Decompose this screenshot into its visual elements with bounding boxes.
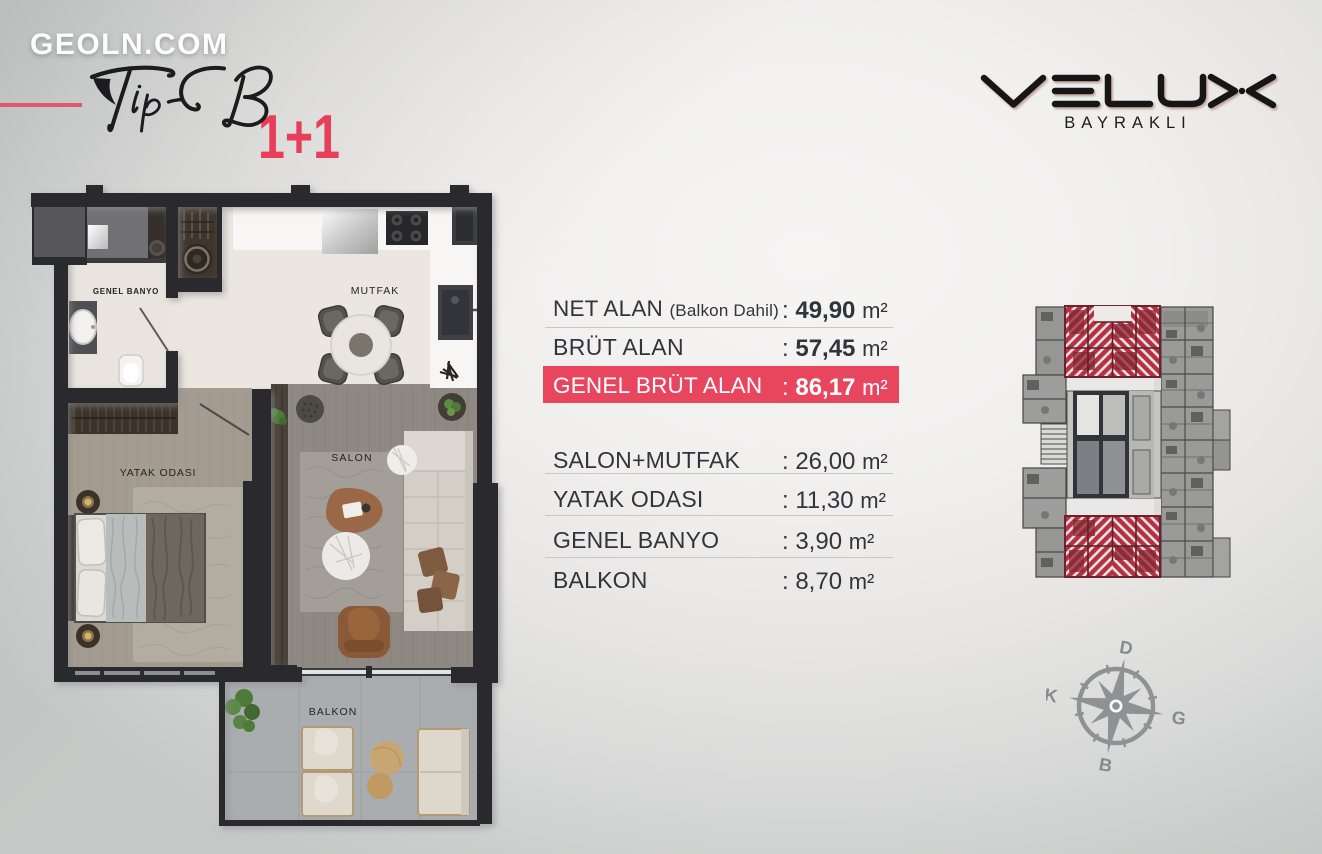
svg-text:SALON: SALON [331,452,373,464]
svg-text:BALKON: BALKON [309,706,358,718]
svg-text:B: B [1097,754,1113,776]
svg-text:MUTFAK: MUTFAK [351,285,400,297]
svg-text:D: D [1118,637,1134,659]
svg-text:K: K [1046,685,1059,707]
svg-text:YATAK ODASI: YATAK ODASI [120,467,196,479]
svg-text:G: G [1170,707,1186,729]
svg-text:GENEL BANYO: GENEL BANYO [93,287,159,296]
